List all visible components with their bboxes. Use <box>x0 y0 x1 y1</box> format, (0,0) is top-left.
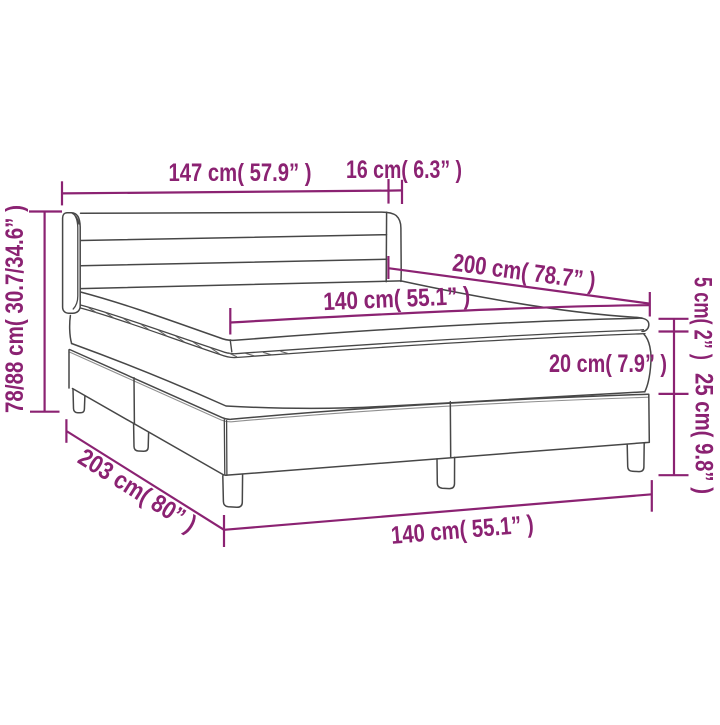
svg-text:147 cm( 57.9” ): 147 cm( 57.9” ) <box>169 159 312 187</box>
svg-text:78/88 cm( 30.7/34.6” ): 78/88 cm( 30.7/34.6” ) <box>1 205 29 413</box>
svg-text:25 cm( 9.8” ): 25 cm( 9.8” ) <box>690 373 718 494</box>
svg-text:5 cm( 2” ): 5 cm( 2” ) <box>689 277 717 360</box>
svg-text:16 cm( 6.3” ): 16 cm( 6.3” ) <box>346 156 462 184</box>
svg-text:20 cm( 7.9” ): 20 cm( 7.9” ) <box>549 350 667 378</box>
